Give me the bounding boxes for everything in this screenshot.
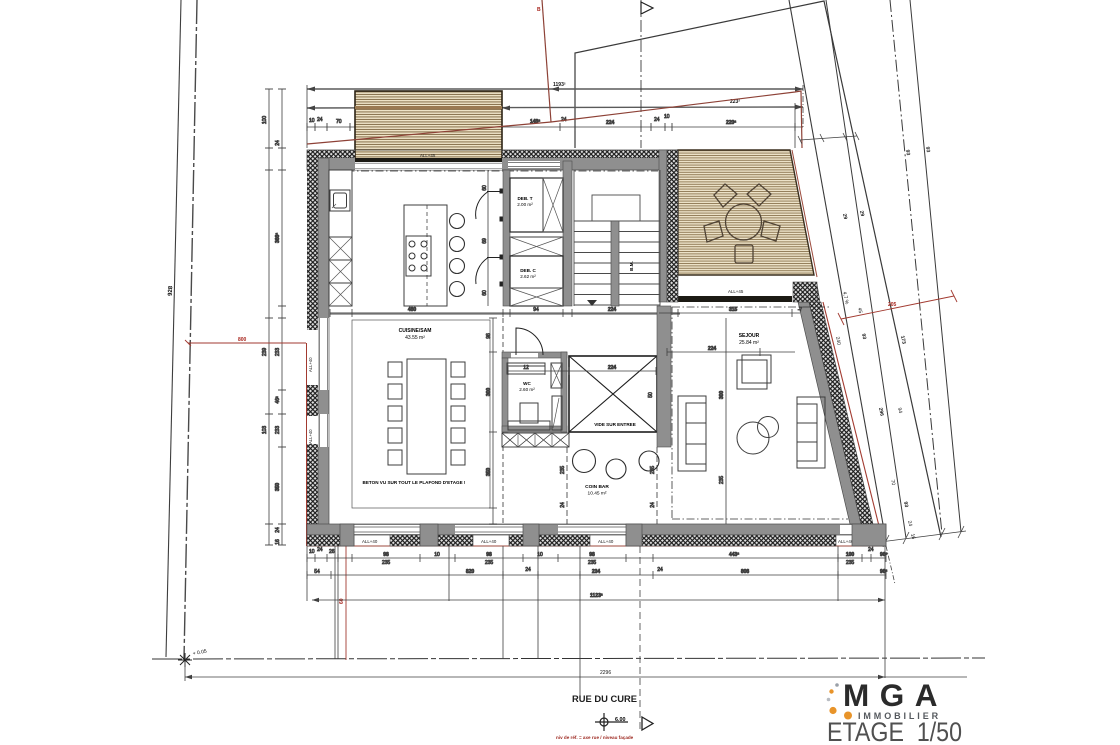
svg-text:235: 235 [846,560,855,566]
svg-text:235: 235 [588,560,597,566]
svg-text:94: 94 [533,307,539,313]
svg-text:60: 60 [339,598,345,604]
svg-text:350: 350 [275,483,281,492]
svg-text:928: 928 [168,285,175,296]
svg-text:ALL+40: ALL+40 [362,539,378,544]
svg-text:2.60 m²: 2.60 m² [519,387,535,392]
svg-text:239: 239 [262,348,268,357]
svg-text:300: 300 [486,388,492,397]
svg-text:60: 60 [482,290,488,296]
svg-text:50: 50 [648,392,654,398]
svg-text:-7: -7 [798,307,803,313]
svg-text:98: 98 [589,552,595,558]
svg-text:46²: 46² [275,396,281,404]
svg-text:MGA: MGA [843,677,948,713]
svg-text:69: 69 [482,238,488,244]
svg-text:60: 60 [482,185,488,191]
svg-text:ALL+45: ALL+45 [728,289,744,294]
svg-text:235: 235 [650,466,656,475]
svg-text:24: 24 [317,547,323,553]
svg-text:235: 235 [560,466,566,475]
svg-text:ALL+40: ALL+40 [481,539,497,544]
svg-text:205: 205 [888,302,897,308]
svg-text:WC: WC [523,381,531,386]
svg-text:220²: 220² [726,120,736,126]
svg-text:96²: 96² [880,552,888,558]
svg-text:98: 98 [486,333,492,339]
svg-text:SEJOUR: SEJOUR [739,333,760,339]
svg-text:24: 24 [317,117,323,123]
svg-text:224: 224 [608,365,617,371]
svg-text:24: 24 [525,567,531,573]
svg-text:VIDE SUR ENTREE: VIDE SUR ENTREE [594,422,636,427]
svg-text:10: 10 [309,118,315,124]
svg-text:100: 100 [846,552,855,558]
svg-text:350: 350 [486,468,492,477]
svg-text:10: 10 [434,552,440,558]
svg-text:24: 24 [650,502,656,508]
svg-text:224: 224 [708,346,717,352]
svg-text:100: 100 [262,116,268,125]
svg-text:DEB. C: DEB. C [520,268,536,273]
svg-text:COIN BAR: COIN BAR [585,484,609,490]
svg-text:24: 24 [657,567,663,573]
svg-text:43.55 m²: 43.55 m² [405,335,425,341]
svg-text:96²: 96² [880,569,888,575]
svg-text:98: 98 [383,552,389,558]
svg-text:24: 24 [560,502,566,508]
svg-text:315: 315 [729,307,738,313]
svg-text:DEB. T: DEB. T [517,196,532,201]
svg-text:B: B [537,7,541,13]
svg-text:ALL+40: ALL+40 [598,539,614,544]
svg-text:54: 54 [314,569,320,575]
svg-text:16: 16 [275,539,281,545]
svg-text:2296: 2296 [600,670,611,676]
svg-text:235: 235 [719,476,725,485]
svg-text:BETON VU SUR TOUT LE PLAFOND D: BETON VU SUR TOUT LE PLAFOND D'ETAGE ! [363,480,466,485]
svg-text:235: 235 [382,560,391,566]
svg-text:25.84 m²: 25.84 m² [739,340,759,346]
svg-text:1193²: 1193² [553,82,566,88]
svg-text:224: 224 [606,120,615,126]
svg-text:443²: 443² [729,552,739,558]
svg-text:RUE DU CURE: RUE DU CURE [572,694,637,704]
svg-text:234: 234 [592,569,601,575]
svg-text:10: 10 [309,549,315,555]
svg-text:24: 24 [868,547,874,553]
svg-text:ETAGE 1/50: ETAGE 1/50 [827,717,962,745]
svg-text:niv de réf. = axe rue / niveau: niv de réf. = axe rue / niveau façade [556,735,634,740]
svg-text:233: 233 [275,348,281,357]
svg-text:24: 24 [275,527,281,533]
svg-text:224: 224 [608,307,617,313]
svg-text:24: 24 [275,140,281,146]
svg-text:ALL+45: ALL+45 [420,153,436,158]
svg-text:ALL+40: ALL+40 [308,429,313,444]
svg-text:800: 800 [238,337,247,343]
svg-text:10.45 m²: 10.45 m² [588,491,607,497]
svg-text:2.00 m²: 2.00 m² [517,202,533,207]
svg-text:70: 70 [336,119,342,125]
svg-text:B.M.: B.M. [629,261,634,271]
svg-text:10: 10 [664,114,670,120]
svg-text:6.00: 6.00 [615,717,626,723]
svg-text:300: 300 [719,391,725,400]
svg-text:808: 808 [741,569,750,575]
svg-text:233: 233 [275,426,281,435]
svg-text:1123²: 1123² [590,593,603,599]
svg-text:98: 98 [486,552,492,558]
svg-text:24: 24 [654,117,660,123]
svg-text:12: 12 [523,365,529,371]
svg-text:366²: 366² [275,233,281,243]
svg-text:480: 480 [408,307,417,313]
svg-text:ALL+40: ALL+40 [308,357,313,372]
svg-text:CUISINE/SAM: CUISINE/SAM [399,328,432,334]
svg-text:ALL+40: ALL+40 [838,539,854,544]
svg-text:26: 26 [329,549,335,555]
svg-text:235: 235 [485,560,494,566]
svg-text:820: 820 [466,569,475,575]
svg-text:2.62 m²: 2.62 m² [520,274,536,279]
svg-text:103: 103 [262,426,268,435]
